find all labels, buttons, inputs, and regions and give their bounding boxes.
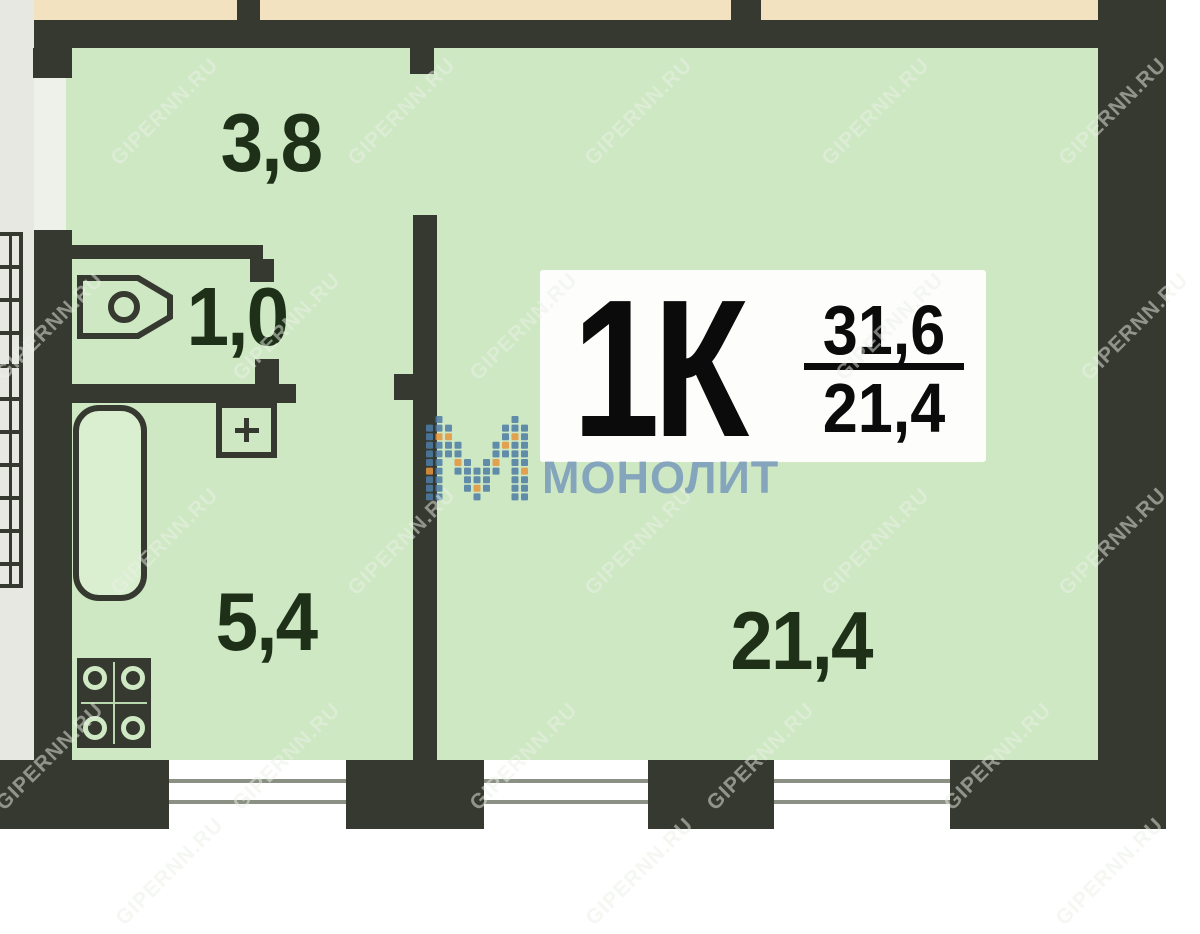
room-area-wc: 1,0: [154, 277, 320, 357]
stove-icon: [77, 658, 151, 748]
site-watermark: GIPERNN.RU: [1051, 813, 1168, 930]
window-2: [484, 760, 648, 829]
room-area-hallway: 3,8: [179, 103, 363, 183]
site-watermark: GIPERNN.RU: [581, 813, 698, 930]
stove-burner: [83, 666, 107, 690]
living-area-value: 21,4: [803, 372, 965, 444]
wc-wall-bottom: [72, 384, 296, 403]
window-1: [169, 760, 346, 829]
developer-logo-icon: [426, 416, 531, 508]
total-area-value: 31,6: [803, 295, 965, 365]
neighbor-wall-stub-2: [731, 0, 761, 20]
site-watermark: GIPERNN.RU: [111, 813, 228, 930]
sink-icon: [216, 402, 277, 458]
stove-burner: [121, 716, 145, 740]
neighbor-wall-stub-1: [237, 0, 260, 20]
staircase-icon: [0, 232, 23, 588]
bathtub-icon: [73, 405, 147, 601]
entrance-door-opening: [34, 75, 66, 230]
adjacent-apartment-strip: [34, 0, 1166, 20]
developer-logo-text: МОНОЛИТ: [542, 456, 779, 500]
apartment-type-label: 1К: [572, 288, 744, 448]
stove-burner: [121, 666, 145, 690]
wc-wall-top: [72, 245, 263, 259]
wall-left: [34, 230, 72, 760]
wall-partition-tick: [394, 374, 413, 400]
floor-plan-canvas: 3,8 1,0 5,4 21,4 1К 31,6 21,4 МОНОЛИТ GI…: [0, 0, 1200, 934]
wall-top: [34, 20, 1166, 48]
stove-burner: [83, 716, 107, 740]
window-3: [774, 760, 950, 829]
room-area-living-room: 21,4: [691, 601, 912, 681]
wall-right: [1098, 0, 1166, 829]
wall-left-upper-stub: [33, 48, 72, 78]
room-area-kitchen: 5,4: [174, 582, 358, 662]
wall-partition-top-stub: [410, 48, 434, 74]
